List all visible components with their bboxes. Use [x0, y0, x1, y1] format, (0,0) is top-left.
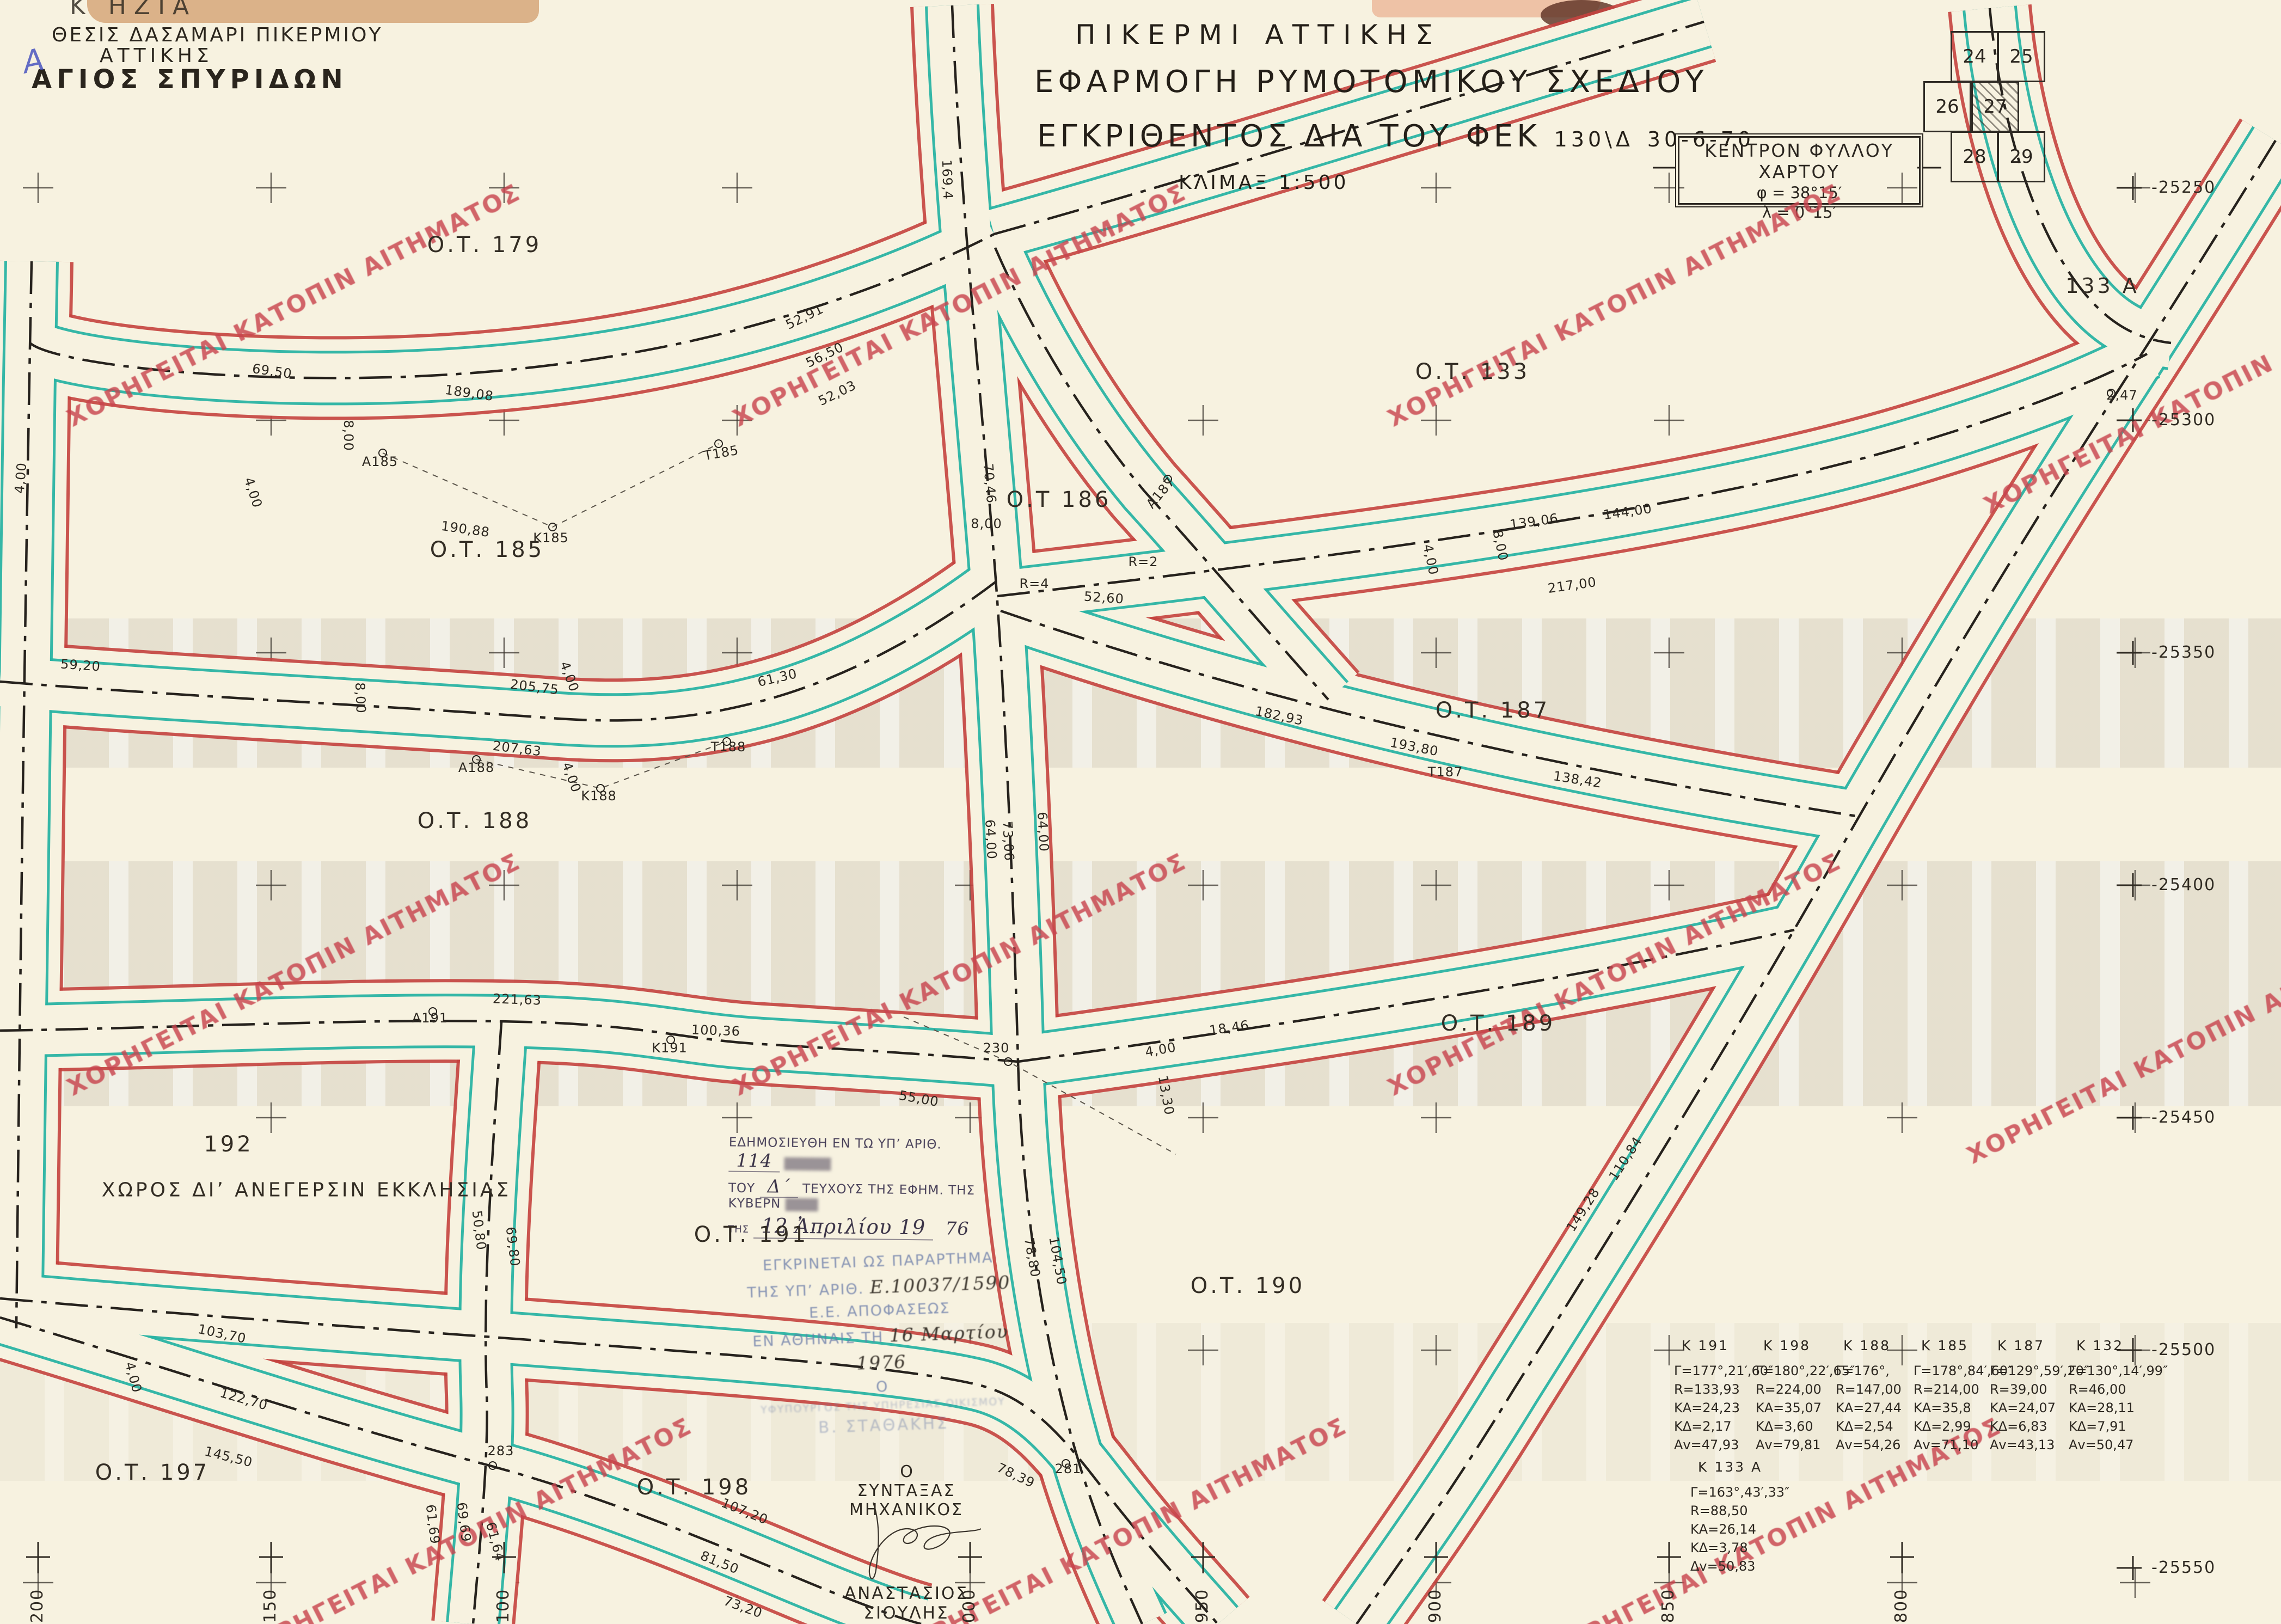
grid-label-easting: -25250	[2151, 178, 2216, 197]
curve-value: Αv=50,47	[2069, 1436, 2150, 1454]
block-label: ΧΩΡΟΣ ΔΙ’ ΑΝΕΓΕΡΣΙΝ ΕΚΚΛΗΣΙΑΣ	[102, 1179, 511, 1202]
curve-value: ΚΔ=2,17	[1674, 1417, 1756, 1436]
stamp-smudge	[785, 1198, 818, 1211]
signature-heading: Ο	[800, 1462, 1013, 1481]
curve-value: ΚΑ=27,44	[1836, 1399, 1917, 1417]
sheet-index-cell: 27	[1971, 81, 2019, 132]
measurement-label: 64,00	[1034, 811, 1052, 852]
curve-value: ΚΔ=3,78	[1690, 1539, 1772, 1557]
measurement-label: 73,06	[1000, 820, 1017, 861]
measurement-label: 169,4	[939, 160, 956, 200]
curve-data-column: Κ 188Γ=176°,R=147,00ΚΑ=27,44ΚΔ=2,54Αv=54…	[1836, 1337, 1917, 1454]
curve-value: Αv=47,93	[1674, 1436, 1756, 1454]
grid-label-easting: -25350	[2151, 643, 2216, 662]
curve-value: ΚΔ=2,54	[1836, 1417, 1917, 1436]
sheet-index-cell: 28	[1951, 131, 1998, 182]
measurement-label: Τ187	[1428, 764, 1463, 780]
stamp-handwriting: 76	[937, 1218, 977, 1240]
scanned-map-sheet: Κ ΗΖΙΑ ΘΕΣΙΣ ΔΑΣΑΜΑΡΙ ΠΙΚΕΡΜΙΟΥ ΑΤΤΙΚΗΣ …	[0, 0, 2281, 1624]
measurement-label: 59,20	[60, 656, 101, 674]
measurement-label: 283	[488, 1443, 514, 1458]
block-label: Ο.Τ 186	[1007, 487, 1112, 512]
curve-name: Κ 185	[1914, 1337, 1995, 1355]
curve-value: Γ=177°,21′,60″	[1674, 1362, 1756, 1380]
measurement-label: Κ191	[652, 1040, 688, 1056]
sheet-index-cell: 29	[1997, 131, 2045, 182]
block-label: Ο.Τ. 179	[427, 232, 542, 258]
block-label: Ο.Τ. 190	[1191, 1273, 1305, 1298]
approval-stamp: ΕΓΚΡΙΝΕΤΑΙ ΩΣ ΠΑΡΑΡΤΗΜΑ ΤΗΣ ΥΠ’ ΑΡΙΘ. Ε.…	[731, 1246, 1031, 1443]
curve-value: Αv=71,10	[1914, 1436, 1995, 1454]
curve-value: R=46,00	[2069, 1380, 2150, 1399]
grid-label-northing: -3100	[494, 1589, 513, 1624]
curve-value: R=39,00	[1990, 1380, 2071, 1399]
map-subtitle: ΕΦΑΡΜΟΓΗ ΡΥΜΟΤΟΜΙΚΟΥ ΣΧΕΔΙΟΥ	[1034, 64, 1708, 100]
map-title: ΠΙΚΕΡΜΙ ΑΤΤΙΚΗΣ	[1075, 19, 1442, 51]
grid-label-northing: -3000	[960, 1589, 979, 1624]
curve-name: Κ 133 Α	[1690, 1458, 1772, 1476]
block-label: Ο.Τ. 188	[418, 808, 532, 834]
curve-value: ΚΑ=26,14	[1690, 1520, 1772, 1539]
grid-label-northing: -2900	[1426, 1589, 1445, 1624]
stamp-smudge	[784, 1157, 831, 1170]
curve-data-column: Κ 191Γ=177°,21′,60″R=133,93ΚΑ=24,23ΚΔ=2,…	[1674, 1337, 1756, 1454]
stamp-handwriting: 114	[728, 1150, 780, 1173]
curve-value: R=147,00	[1836, 1380, 1917, 1399]
curve-value: Γ=180°,22′,65″	[1756, 1362, 1837, 1380]
fek-number: 130\Δ	[1554, 127, 1634, 151]
curve-value: ΚΑ=35,8	[1914, 1399, 1995, 1417]
curve-value: ΚΑ=35,07	[1756, 1399, 1837, 1417]
curve-value: Γ=130°,14′,99″	[2069, 1362, 2150, 1380]
curve-value: Γ=178°,84′,60″	[1914, 1362, 1995, 1380]
block-label: 133 Α	[2065, 274, 2139, 298]
signature-heading: ΣΥΝΤΑΞΑΣ ΜΗΧΑΝΙΚΟΣ	[800, 1481, 1013, 1519]
map-line	[1001, 611, 1860, 817]
measurement-label: 52,60	[1083, 589, 1124, 606]
grid-label-easting: -25400	[2151, 875, 2216, 894]
curve-value: Γ=163°,43′,33″	[1690, 1483, 1772, 1502]
curve-value: Αv=54,26	[1836, 1436, 1917, 1454]
curve-name: Κ 188	[1836, 1337, 1917, 1355]
grid-label-northing: -2950	[1193, 1589, 1212, 1624]
block-label: Ο.Τ. 133	[1415, 359, 1530, 384]
measurement-label: 2,47	[2106, 388, 2137, 403]
measurement-label: Α188	[458, 760, 494, 775]
curve-data-column: Κ 198Γ=180°,22′,65″R=224,00ΚΑ=35,07ΚΔ=3,…	[1756, 1337, 1837, 1454]
measurement-label: Α191	[412, 1010, 448, 1026]
measurement-label: 281	[1055, 1461, 1082, 1476]
curve-data-column: Κ 187Γ=129°,59′,20″R=39,00ΚΑ=24,07ΚΔ=6,8…	[1990, 1337, 2071, 1454]
measurement-label: 8,00	[352, 682, 369, 714]
approval-text: ΕΓΚΡΙΘΕΝΤΟΣ ΔΙΑ ΤΟΥ ΦΕΚ	[1037, 119, 1541, 154]
measurement-label: 4,00	[12, 462, 30, 494]
curve-value: R=88,50	[1690, 1502, 1772, 1520]
location-line-1: ΘΕΣΙΣ ΔΑΣΑΜΑΡΙ ΠΙΚΕΡΜΙΟΥ	[52, 24, 383, 46]
center-box-lambda: λ = 0°15′	[1679, 203, 1919, 222]
grid-label-easting: -25500	[2151, 1340, 2216, 1359]
grid-label-northing: -3200	[28, 1589, 47, 1624]
measurement-label: Κ188	[581, 788, 617, 804]
curve-value: Γ=176°,	[1836, 1362, 1917, 1380]
stamp-text: ΤΗΣ ΥΠ’ ΑΡΙΘ.	[747, 1280, 864, 1301]
measurement-label: Α185	[362, 454, 398, 469]
block-label: Ο.Τ. 198	[637, 1475, 751, 1500]
grid-label-easting: -25450	[2151, 1108, 2216, 1127]
measurement-label: Τ188	[711, 739, 746, 755]
location-line-2: ΑΤΤΙΚΗΣ	[100, 45, 213, 67]
center-box-phi: φ = 38°15′	[1679, 183, 1919, 202]
curve-name: Κ 191	[1674, 1337, 1756, 1355]
curve-value: ΚΔ=2,99	[1914, 1417, 1995, 1436]
measurement-label: 100,36	[691, 1022, 741, 1039]
curve-value: ΚΑ=24,23	[1674, 1399, 1756, 1417]
curve-value: Γ=129°,59′,20″	[1990, 1362, 2071, 1380]
stamp-text: ΕΔΗΜΟΣΙΕΥΘΗ ΕΝ ΤΩ ΥΠ’ ΑΡΙΘ.	[729, 1136, 942, 1152]
grid-label-northing: -2850	[1659, 1589, 1678, 1624]
sheet-index-cell: 26	[1923, 81, 1971, 132]
map-scale: ΚΛΙΜΑΞ 1:500	[1179, 171, 1348, 194]
grid-label-northing: -2800	[1892, 1589, 1911, 1624]
measurement-label: R=2	[1128, 554, 1158, 569]
sheet-index-cell: 25	[1997, 31, 2045, 82]
grid-label-northing: -3150	[261, 1589, 280, 1624]
map-approval-line: ΕΓΚΡΙΘΕΝΤΟΣ ΔΙΑ ΤΟΥ ΦΕΚ 130\Δ 30-6-70	[1037, 119, 1755, 154]
center-box-title: ΚΕΝΤΡΟΝ ΦΥΛΛΟΥ ΧΑΡΤΟΥ	[1679, 140, 1919, 182]
stamp-text: ΕΝ ΑΘΗΝΑΙΣ ΤΗ	[752, 1328, 884, 1350]
partial-top-text: Κ ΗΖΙΑ	[70, 0, 197, 20]
measurement-label: R=4	[1019, 576, 1049, 591]
sheet-center-box: ΚΕΝΤΡΟΝ ΦΥΛΛΟΥ ΧΑΡΤΟΥ φ = 38°15′ λ = 0°1…	[1678, 136, 1921, 205]
curve-data-column: Κ 185Γ=178°,84′,60″R=214,00ΚΑ=35,8ΚΔ=2,9…	[1914, 1337, 1995, 1454]
measurement-label: 230	[983, 1040, 1010, 1056]
grid-label-easting: -25550	[2151, 1558, 2216, 1577]
curve-value: ΚΔ=7,91	[2069, 1417, 2150, 1436]
curve-data-column: Κ 133 ΑΓ=163°,43′,33″R=88,50ΚΑ=26,14ΚΔ=3…	[1690, 1458, 1772, 1576]
curve-value: ΚΔ=3,60	[1756, 1417, 1837, 1436]
curve-value: Αv=43,13	[1990, 1436, 2071, 1454]
curve-value: R=224,00	[1756, 1380, 1837, 1399]
measurement-label: 64,00	[982, 819, 1000, 860]
stamp-text: Ε.Ε. ΑΠΟΦΑΣΕΩΣ	[809, 1300, 951, 1322]
curve-name: Κ 187	[1990, 1337, 2071, 1355]
stamp-handwriting: Δ΄	[759, 1175, 798, 1198]
stamp-text: ΤΟΥ	[728, 1181, 755, 1196]
measurement-label: Κ185	[533, 530, 569, 546]
measurement-label: 8,00	[971, 516, 1002, 531]
curve-value: R=133,93	[1674, 1380, 1756, 1399]
block-label: Ο.Τ. 189	[1441, 1011, 1555, 1036]
map-line	[383, 444, 719, 527]
block-label: Ο.Τ. 191	[694, 1222, 808, 1247]
measurement-label: 8,00	[341, 420, 356, 451]
block-label: Ο.Τ. 197	[95, 1460, 210, 1485]
curve-value: Δv=50,83	[1690, 1557, 1772, 1576]
engineer-signature-block: Ο ΣΥΝΤΑΞΑΣ ΜΗΧΑΝΙΚΟΣ ΑΝΑΣΤΑΣΙΟΣ ΣΙΟΥΛΗΣ …	[800, 1462, 1013, 1624]
curve-value: ΚΑ=24,07	[1990, 1399, 2071, 1417]
measurement-label: 221,63	[493, 991, 542, 1008]
curve-name: Κ 198	[1756, 1337, 1837, 1355]
curve-value: R=214,00	[1914, 1380, 1995, 1399]
curve-name: Κ 132	[2069, 1337, 2150, 1355]
curve-data-column: Κ 132Γ=130°,14′,99″R=46,00ΚΑ=28,11ΚΔ=7,9…	[2069, 1337, 2150, 1454]
engineer-name: ΑΝΑΣΤΑΣΙΟΣ ΣΙΟΥΛΗΣ	[800, 1584, 1013, 1623]
sheet-index-cell: 24	[1951, 31, 1998, 82]
stamp-handwriting: Ε.10037/1590	[869, 1271, 1011, 1297]
curve-value: Αv=79,81	[1756, 1436, 1837, 1454]
block-label: 192	[204, 1132, 253, 1157]
curve-value: ΚΑ=28,11	[2069, 1399, 2150, 1417]
grid-label-easting: -25300	[2151, 410, 2216, 430]
block-label: Ο.Τ. 185	[430, 537, 544, 562]
block-label: Ο.Τ. 187	[1436, 698, 1550, 723]
location-line-3: ΑΓΙΟΣ ΣΠΥΡΙΔΩΝ	[32, 64, 348, 95]
curve-value: ΚΔ=6,83	[1990, 1417, 2071, 1436]
